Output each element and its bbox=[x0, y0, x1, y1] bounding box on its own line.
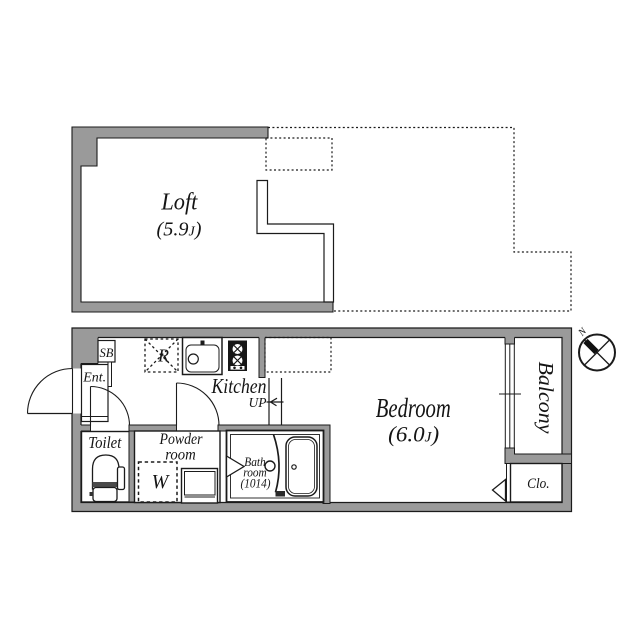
svg-text:Bedroom: Bedroom bbox=[376, 393, 451, 423]
svg-text:(6.0J): (6.0J) bbox=[388, 422, 439, 447]
svg-text:Clo.: Clo. bbox=[527, 476, 550, 492]
svg-text:UP: UP bbox=[249, 395, 267, 410]
svg-text:Loft: Loft bbox=[160, 190, 198, 216]
svg-text:Toilet: Toilet bbox=[88, 433, 121, 452]
svg-text:W: W bbox=[152, 471, 171, 493]
svg-text:(1014): (1014) bbox=[241, 477, 271, 491]
svg-text:room: room bbox=[165, 447, 196, 464]
svg-text:Powder: Powder bbox=[159, 431, 204, 448]
svg-text:SB: SB bbox=[100, 346, 114, 360]
svg-text:Ent.: Ent. bbox=[82, 371, 106, 386]
svg-text:Balcony: Balcony bbox=[534, 362, 558, 435]
svg-text:(5.9J): (5.9J) bbox=[157, 219, 202, 241]
svg-text:R: R bbox=[157, 346, 169, 366]
